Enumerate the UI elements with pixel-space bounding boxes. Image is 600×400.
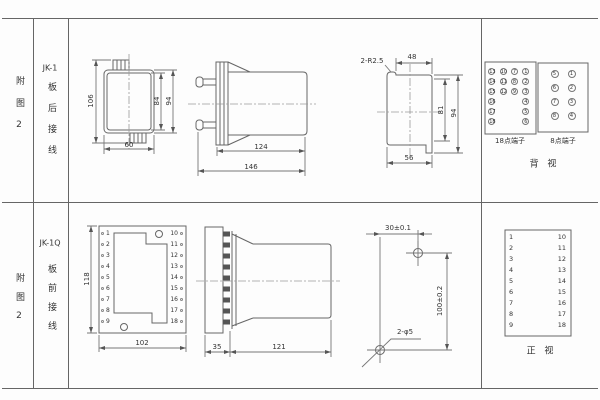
terminal-hole-icon (101, 265, 104, 268)
dim-inner-height: 84 (153, 97, 161, 106)
table-number: 15 (558, 289, 566, 296)
terminal-row: 5 (101, 274, 110, 281)
table-number: 16 (558, 300, 566, 307)
row1-wiring-label: 板后接线 (46, 82, 55, 166)
terminal-number: 14 (170, 274, 178, 281)
terminal-hole-icon (180, 276, 183, 279)
dim-outer-height: 94 (165, 97, 173, 106)
terminal-row: 12 (163, 252, 183, 259)
terminal-8pt-label: 8点端子 (550, 136, 575, 146)
plate-side-view-drawing (196, 227, 340, 357)
drawing-linework (0, 0, 600, 400)
table-number: 11 (558, 245, 566, 252)
terminal-table-right-column: 10 11 12 13 14 15 16 17 18 (548, 234, 566, 329)
terminal-row: 16 (163, 296, 183, 303)
back-view-label: 背 视 (530, 157, 557, 170)
terminal-circle: 1 (522, 68, 529, 75)
terminal-row: 17 (163, 307, 183, 314)
plate-left-terminals: 1 2 3 4 5 6 7 8 9 (101, 230, 110, 325)
table-number: 3 (509, 256, 513, 263)
terminal-circle: 5 (522, 108, 529, 115)
terminal-circle: 12 (500, 88, 507, 95)
plate-right-terminals: 10 11 12 13 14 15 16 17 18 (163, 230, 183, 325)
relay-dimension-diagram-page: 附图2 JK-1 板后接线 附图2 JK-1Q 板前接线 106 84 94 6… (0, 0, 600, 400)
terminal-row: 10 (163, 230, 183, 237)
terminal-circle: 4 (568, 112, 576, 120)
dim-front-width: 60 (125, 141, 134, 149)
terminal-row: 2 (101, 241, 110, 248)
terminal-circle: 13 (488, 68, 495, 75)
terminal-18pt-label: 18点端子 (495, 136, 525, 146)
front-view-label: 正 视 (527, 344, 554, 357)
dim-cutout-bottom-width: 56 (405, 154, 414, 162)
terminal-18pt-grid: 13 10 7 1 14 11 8 2 15 12 9 3 16 4 17 5 … (486, 66, 532, 127)
row2-wiring-label: 板前接线 (46, 264, 55, 340)
dim-plate-width: 102 (135, 339, 148, 347)
terminal-circle: 3 (568, 98, 576, 106)
terminal-hole-icon (180, 287, 183, 290)
terminal-hole-icon (101, 320, 104, 323)
table-number: 1 (509, 234, 513, 241)
terminal-hole-icon (180, 309, 183, 312)
terminal-number: 11 (170, 241, 178, 248)
row2-figure-label: 附图2 (14, 273, 23, 331)
terminal-number: 10 (170, 230, 178, 237)
table-number: 13 (558, 267, 566, 274)
terminal-circle: 7 (511, 68, 518, 75)
terminal-row: 4 (101, 263, 110, 270)
terminal-circle: 18 (488, 118, 495, 125)
terminal-row: 7 (101, 296, 110, 303)
dim-cutout-top-width: 48 (408, 53, 417, 61)
row1-figure-label: 附图2 (14, 76, 23, 143)
terminal-circle: 14 (488, 78, 495, 85)
terminal-number: 17 (170, 307, 178, 314)
terminal-table-left-column: 1 2 3 4 5 6 7 8 9 (509, 234, 513, 329)
terminal-number: 5 (106, 274, 110, 281)
terminal-circle: 2 (522, 78, 529, 85)
terminal-number: 8 (106, 307, 110, 314)
terminal-hole-icon (101, 243, 104, 246)
terminal-circle: 6 (522, 118, 529, 125)
terminal-circle: 17 (488, 108, 495, 115)
table-number: 7 (509, 300, 513, 307)
terminal-hole-icon (180, 254, 183, 257)
dim-total-height: 106 (87, 94, 95, 107)
dim-plate-height: 118 (83, 272, 91, 285)
dim-hole-spacing-h: 30±0.1 (385, 224, 411, 232)
table-number: 8 (509, 311, 513, 318)
terminal-row: 15 (163, 285, 183, 292)
terminal-circle: 2 (568, 84, 576, 92)
table-number: 17 (558, 311, 566, 318)
terminal-number: 1 (106, 230, 110, 237)
terminal-circle: 3 (522, 88, 529, 95)
terminal-row: 14 (163, 274, 183, 281)
terminal-hole-icon (101, 254, 104, 257)
terminal-circle: 8 (511, 78, 518, 85)
table-number: 5 (509, 278, 513, 285)
terminal-hole-icon (101, 287, 104, 290)
terminal-row: 1 (101, 230, 110, 237)
terminal-circle: 6 (551, 84, 559, 92)
dim-hole-spacing-v: 100±0.2 (436, 286, 444, 316)
terminal-number: 7 (106, 296, 110, 303)
terminal-hole-icon (180, 232, 183, 235)
terminal-number: 3 (106, 252, 110, 259)
table-number: 4 (509, 267, 513, 274)
terminal-circle: 7 (551, 98, 559, 106)
dim-total-length: 146 (244, 163, 257, 171)
dim-body-length-2: 121 (272, 343, 285, 351)
dim-plate-depth: 35 (213, 343, 222, 351)
terminal-circle: 9 (511, 88, 518, 95)
terminal-row: 11 (163, 241, 183, 248)
table-number: 2 (509, 245, 513, 252)
row1-model-label: JK-1 (43, 64, 58, 73)
terminal-row: 9 (101, 318, 110, 325)
terminal-number: 2 (106, 241, 110, 248)
terminal-8pt-grid: 5 1 6 2 7 3 8 4 (546, 67, 580, 123)
row2-model-label: JK-1Q (39, 239, 60, 248)
terminal-circle: 5 (551, 70, 559, 78)
terminal-hole-icon (180, 320, 183, 323)
terminal-number: 4 (106, 263, 110, 270)
terminal-row: 6 (101, 285, 110, 292)
terminal-number: 12 (170, 252, 178, 259)
terminal-row: 13 (163, 263, 183, 270)
terminal-row: 3 (101, 252, 110, 259)
note-corner-radius: 2-R2.5 (361, 57, 384, 65)
terminal-hole-icon (101, 232, 104, 235)
table-number: 10 (558, 234, 566, 241)
terminal-circle: 4 (522, 98, 529, 105)
relay-side-view-drawing (188, 62, 316, 176)
terminal-hole-icon (180, 265, 183, 268)
table-number: 9 (509, 322, 513, 329)
terminal-circle: 1 (568, 70, 576, 78)
terminal-row: 18 (163, 318, 183, 325)
terminal-circle: 10 (500, 68, 507, 75)
terminal-circle: 15 (488, 88, 495, 95)
table-number: 12 (558, 256, 566, 263)
terminal-circle: 16 (488, 98, 495, 105)
terminal-hole-icon (180, 298, 183, 301)
terminal-circle: 8 (551, 112, 559, 120)
dim-body-length: 124 (254, 143, 267, 151)
terminal-row: 8 (101, 307, 110, 314)
terminal-number: 15 (170, 285, 178, 292)
table-number: 18 (558, 322, 566, 329)
terminal-number: 6 (106, 285, 110, 292)
terminal-hole-icon (101, 309, 104, 312)
terminal-hole-icon (180, 243, 183, 246)
dim-cutout-inner-height: 81 (437, 106, 445, 115)
table-number: 14 (558, 278, 566, 285)
terminal-number: 18 (170, 318, 178, 325)
terminal-hole-icon (101, 298, 104, 301)
dim-cutout-outer-height: 94 (450, 109, 458, 118)
note-hole-diameter: 2-φ5 (397, 328, 413, 336)
table-number: 6 (509, 289, 513, 296)
terminal-circle: 11 (500, 78, 507, 85)
terminal-hole-icon (101, 276, 104, 279)
terminal-number: 9 (106, 318, 110, 325)
terminal-number: 16 (170, 296, 178, 303)
terminal-number: 13 (170, 263, 178, 270)
